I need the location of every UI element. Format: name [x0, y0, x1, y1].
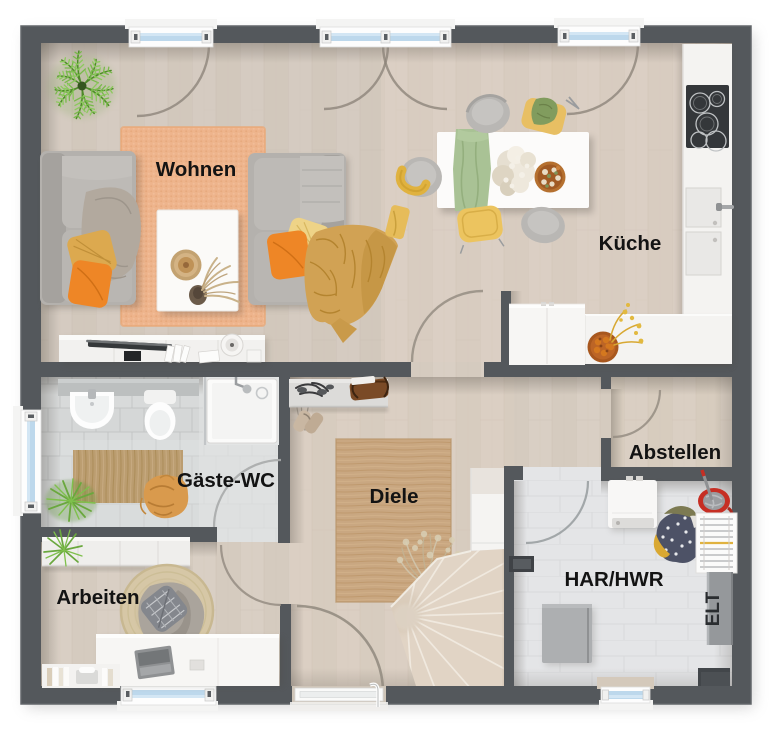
svg-text:Wohnen: Wohnen [156, 158, 236, 181]
svg-text:HAR/HWR: HAR/HWR [564, 568, 663, 591]
svg-text:Abstellen: Abstellen [629, 441, 721, 464]
svg-text:Arbeiten: Arbeiten [56, 586, 139, 609]
svg-text:ELT: ELT [703, 591, 724, 626]
svg-text:Diele: Diele [370, 485, 419, 508]
svg-text:Küche: Küche [599, 232, 662, 255]
svg-text:Gäste-WC: Gäste-WC [177, 469, 275, 492]
